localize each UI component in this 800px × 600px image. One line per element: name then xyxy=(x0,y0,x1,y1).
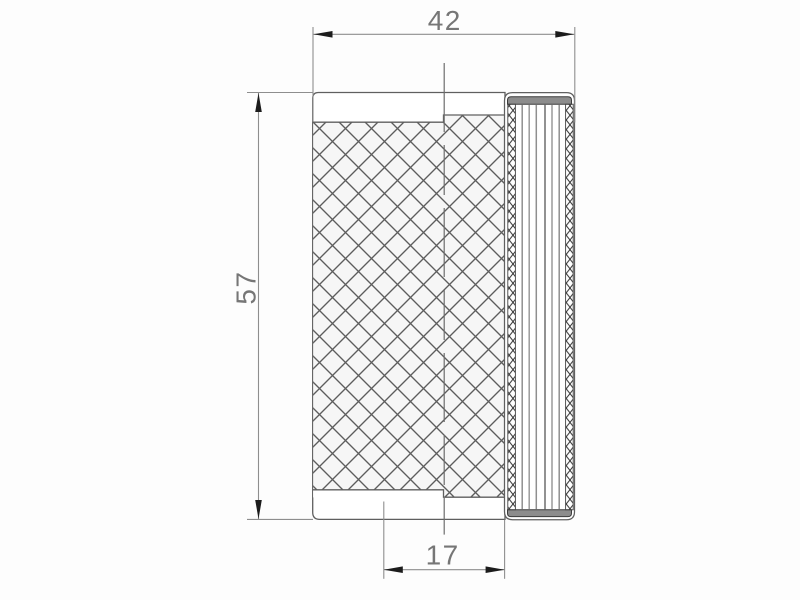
svg-text:17: 17 xyxy=(426,539,460,570)
svg-text:57: 57 xyxy=(231,270,262,304)
svg-text:42: 42 xyxy=(428,5,462,36)
